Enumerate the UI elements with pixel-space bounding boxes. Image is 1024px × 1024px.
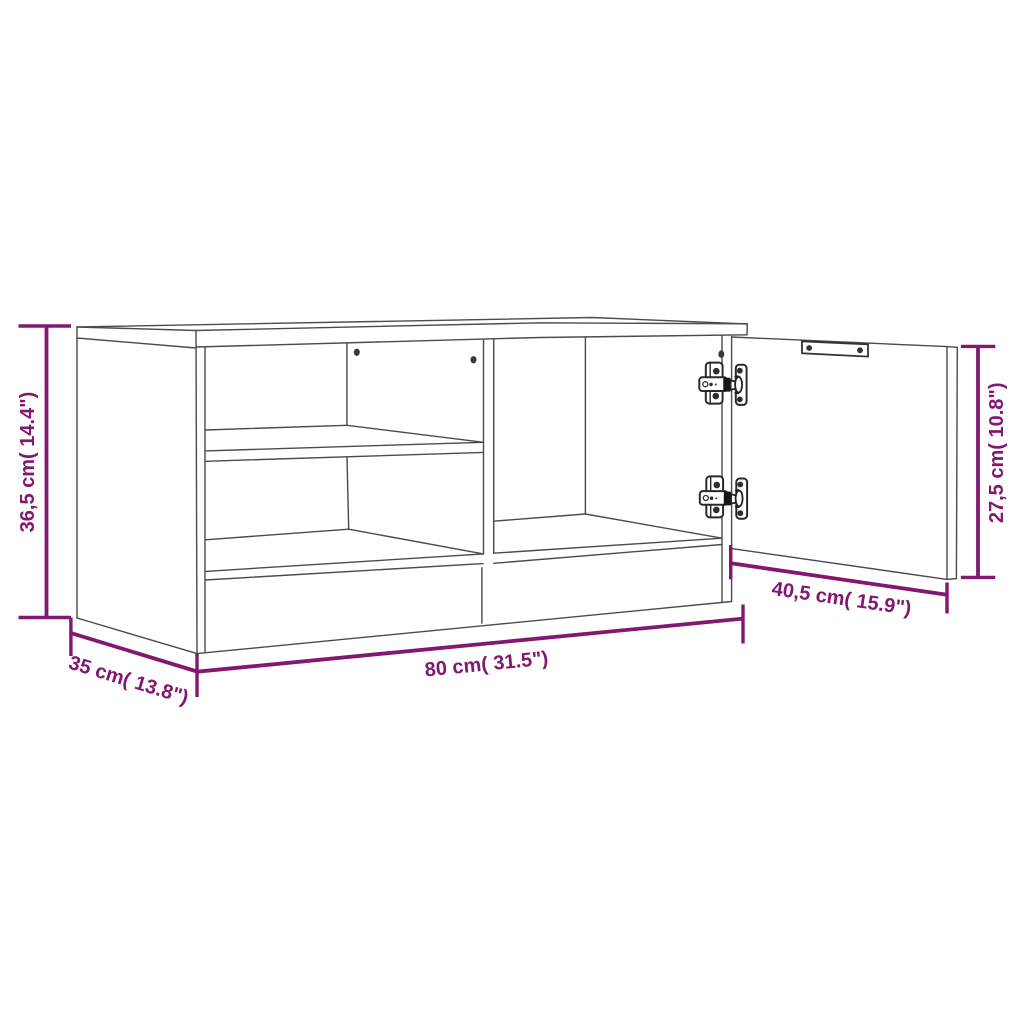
svg-text:36,5 cm( 14.4"): 36,5 cm( 14.4") [17, 392, 39, 533]
svg-text:27,5 cm( 10.8"): 27,5 cm( 10.8") [986, 382, 1008, 523]
